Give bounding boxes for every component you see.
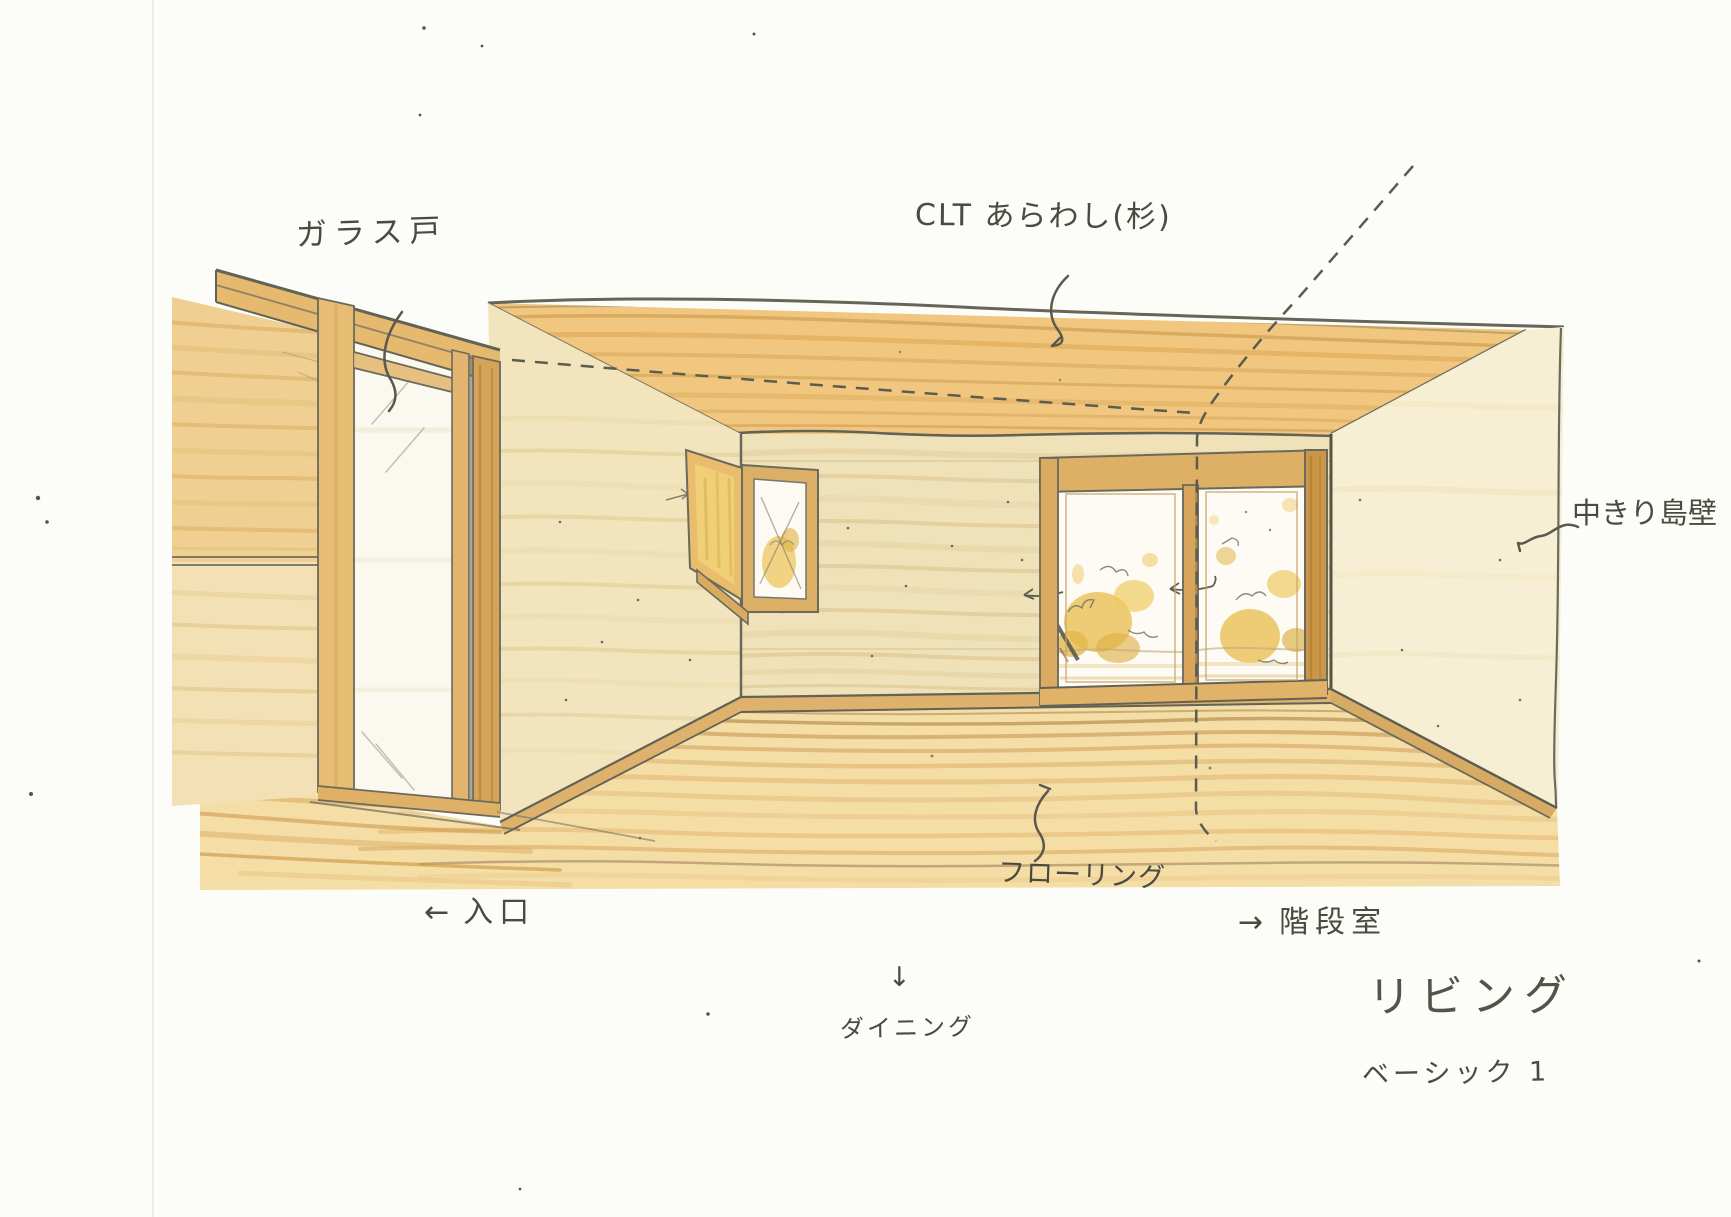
- door-frame-post: [473, 356, 500, 810]
- stairwell-label: 階段室: [1279, 908, 1387, 938]
- stairwell-annotation: → 階段室: [1238, 908, 1387, 938]
- window-left-jamb: [1040, 458, 1058, 705]
- sliding-window: [1024, 450, 1327, 706]
- dining-arrow-icon: ↓: [888, 964, 911, 991]
- ceiling-clt-label: CLT あらわし(杉): [915, 201, 1172, 233]
- window-right-jamb: [1305, 450, 1327, 696]
- glass-door-pane: [354, 332, 452, 798]
- flooring-label: フローリング: [998, 859, 1167, 892]
- sketch-paper: ガラス戸 CLT あらわし(杉) 中きり島壁 フローリング ← 入口 → 階段室…: [0, 0, 1731, 1217]
- entrance-annotation: ← 入口: [424, 898, 535, 928]
- glass-door-label: ガラス戸: [296, 215, 448, 251]
- stairwell-arrow-icon: →: [1238, 908, 1263, 938]
- variant-subtitle: ベーシック 1: [1362, 1058, 1551, 1088]
- door-right-stile: [452, 350, 469, 802]
- entrance-label: 入口: [463, 898, 535, 928]
- dining-label: ダイニング: [840, 1015, 975, 1041]
- room-title: リビング: [1368, 975, 1576, 1020]
- entrance-arrow-icon: ←: [424, 898, 449, 928]
- partition-wall-label: 中きり島壁: [1572, 499, 1717, 528]
